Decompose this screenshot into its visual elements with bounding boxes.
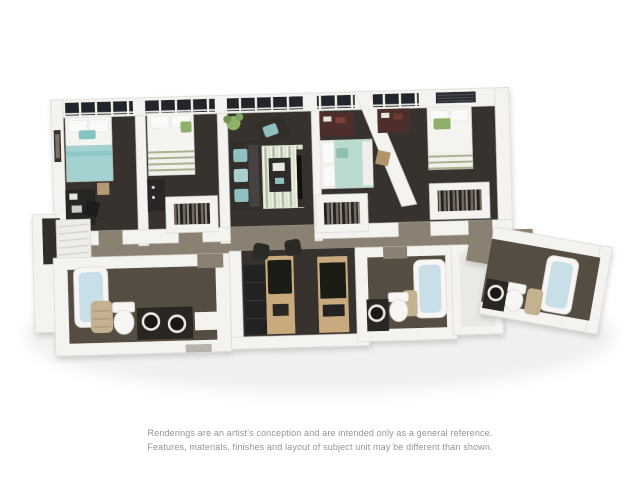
mint-pillow — [336, 148, 348, 158]
pantry-unit — [243, 264, 267, 335]
tv-console — [296, 149, 312, 207]
window-living — [227, 96, 305, 111]
desk-maroon — [319, 112, 354, 137]
vessel-sink — [369, 306, 384, 321]
bed-white-green — [427, 107, 473, 170]
bed-teal — [65, 117, 113, 182]
window-bed3 — [317, 95, 355, 109]
entry-mat — [186, 344, 212, 353]
cooktop — [323, 304, 345, 317]
bath-bench — [195, 312, 217, 331]
closet-bed4 — [429, 182, 490, 220]
vessel-sink-1 — [143, 313, 159, 329]
toilet — [112, 302, 135, 335]
window-bed2 — [145, 99, 215, 114]
desk-maroon-2 — [377, 108, 410, 133]
vanity — [366, 299, 389, 332]
closet-bed2 — [165, 196, 218, 233]
floorplan-main — [29, 87, 536, 357]
floorplan-page: Renderings are an artist's conception an… — [0, 0, 640, 480]
kitchen — [229, 236, 370, 349]
bath-mid-door — [383, 246, 407, 259]
closet-bed3 — [315, 193, 368, 232]
disclaimer-line-2: Features, materials, finishes and layout… — [0, 440, 640, 454]
ceiling-vent-icon — [435, 90, 477, 104]
vessel-sink-2 — [169, 316, 185, 332]
toilet — [388, 292, 409, 322]
bathtub — [413, 259, 447, 318]
sofa — [230, 140, 262, 211]
bar-stool-2 — [284, 238, 302, 256]
bar-stool-1 — [252, 242, 270, 260]
opening-living — [230, 225, 314, 243]
oven — [319, 262, 346, 299]
dresser-dark — [147, 179, 166, 211]
green-pillow — [180, 121, 191, 132]
door-opening-bed3 — [398, 222, 430, 239]
vessel-sink — [488, 285, 504, 301]
kitchen-sink — [272, 304, 288, 316]
disclaimer: Renderings are an artist's conception an… — [0, 426, 640, 454]
disclaimer-line-1: Renderings are an artist's conception an… — [0, 426, 640, 440]
coffee-table — [268, 158, 291, 193]
towel-stack — [90, 301, 113, 334]
double-vanity — [137, 306, 194, 340]
cabinet-run-left — [265, 256, 295, 335]
bed-striped — [147, 112, 195, 175]
nightstand — [97, 183, 109, 195]
door-opening-bed1 — [98, 230, 122, 247]
bed-mint — [320, 139, 373, 188]
cabinet-run-right — [317, 256, 349, 333]
window-bed4-left — [373, 93, 419, 107]
refrigerator — [267, 260, 292, 295]
window-bed1 — [65, 101, 133, 116]
bath-left-door — [197, 253, 223, 268]
green-pillow — [433, 118, 450, 129]
floor-plan-rendering — [0, 0, 640, 480]
